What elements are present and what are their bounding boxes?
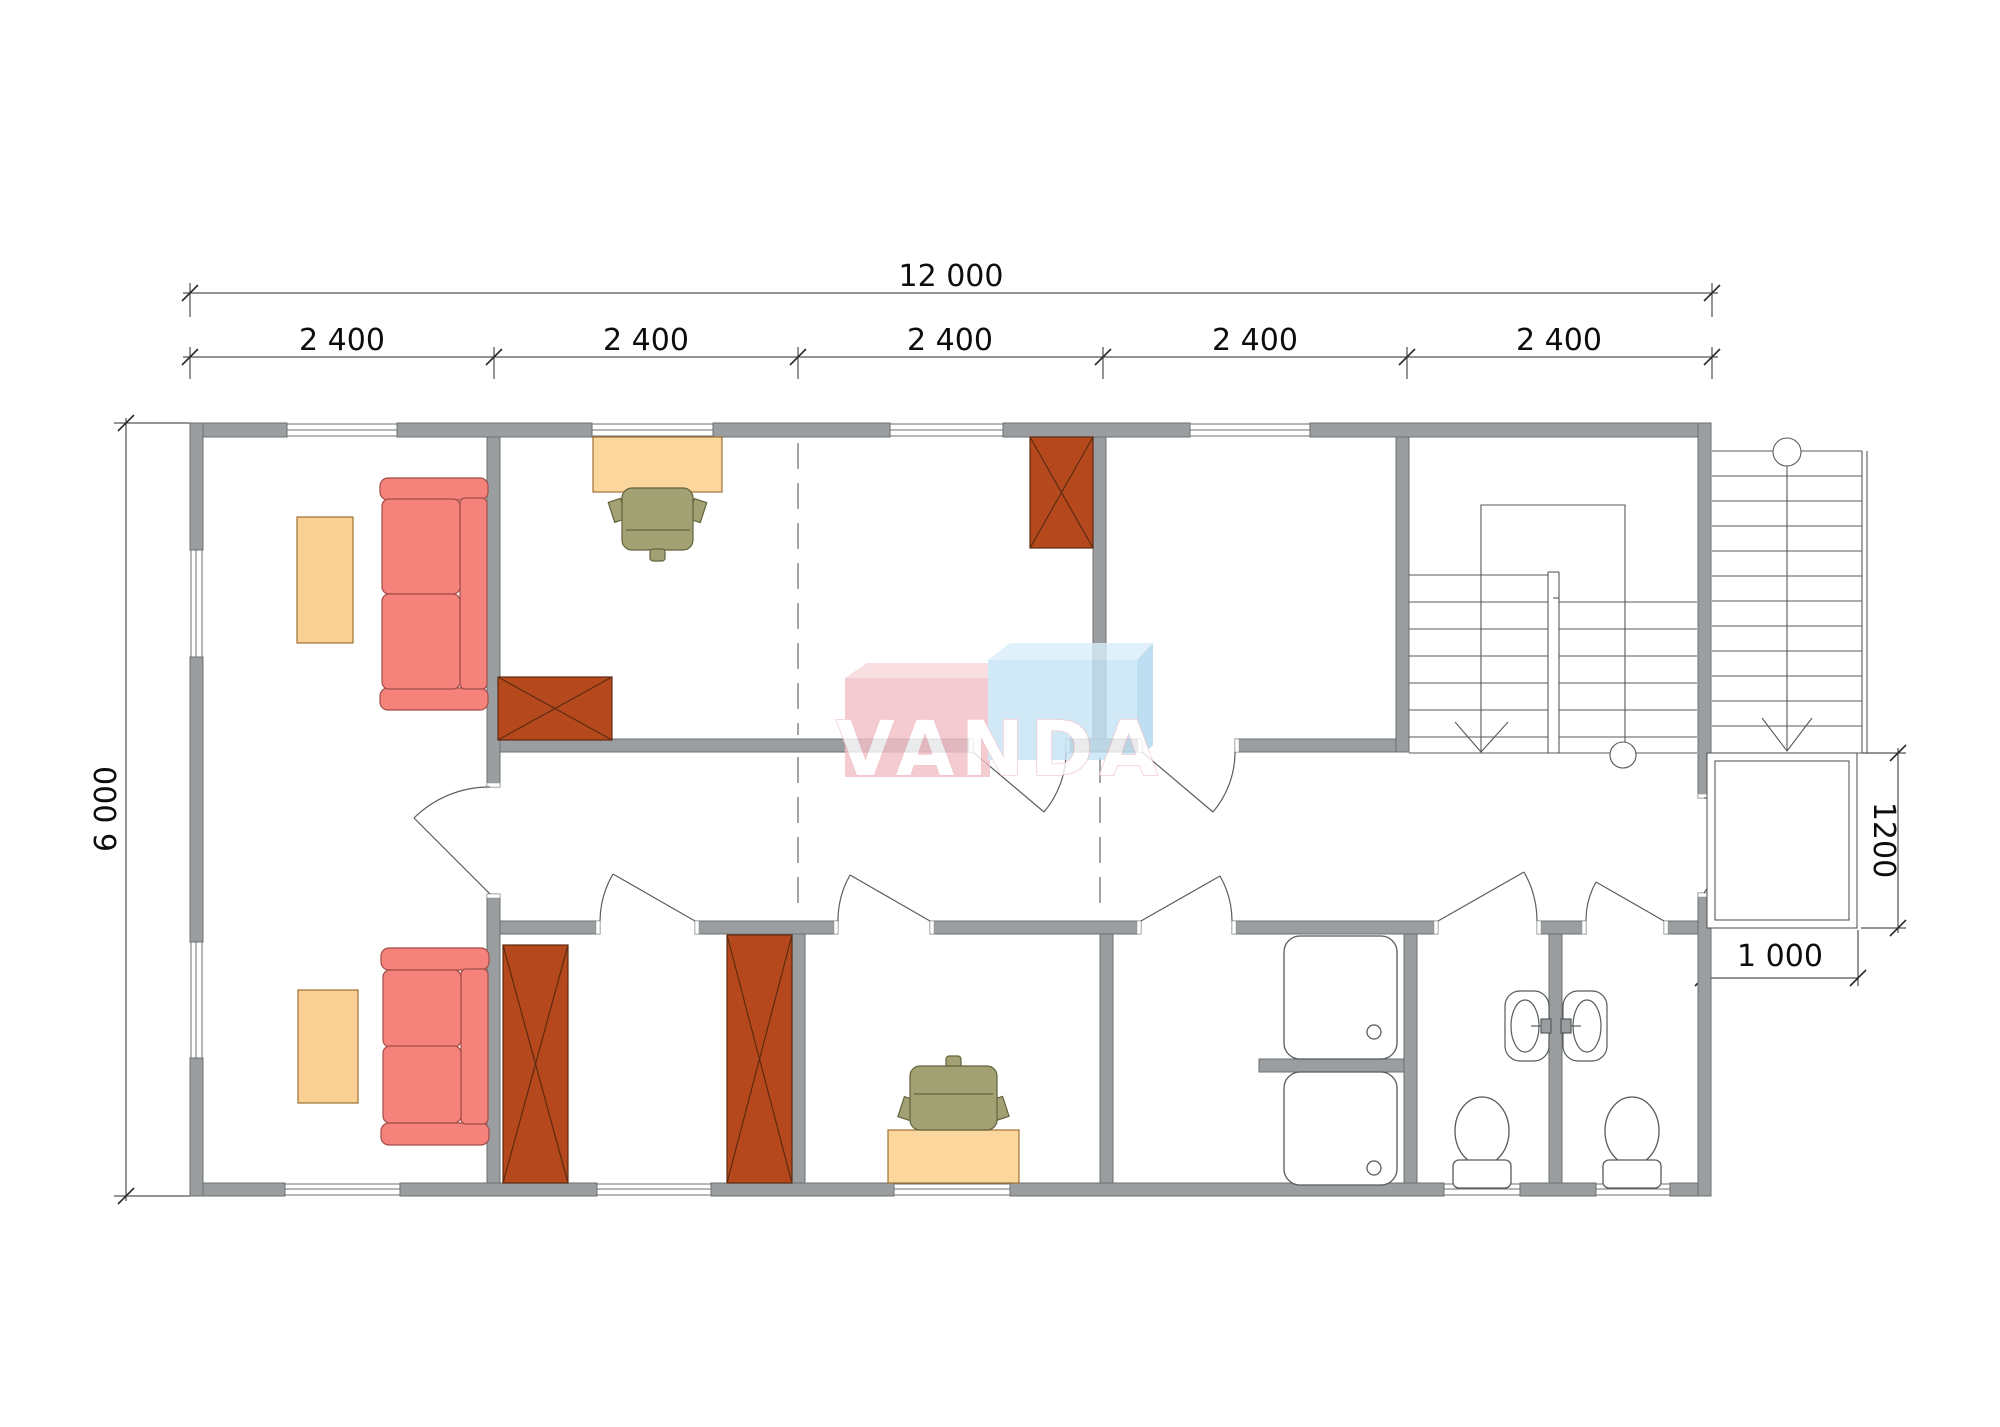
floor-plan-page: 12 000 2 400 2 400 2 400 2 400 2 400 6 0… — [0, 0, 2000, 1423]
toilet-wc2 — [1603, 1097, 1661, 1188]
stair-railing — [1548, 572, 1559, 753]
dim-module-3: 2 400 — [907, 323, 993, 358]
desk-office — [593, 437, 722, 492]
window-bottom-room2 — [894, 1184, 1010, 1195]
wardrobe-office-left — [498, 677, 612, 740]
window-top-living — [287, 424, 397, 436]
logo-pink-box-top — [845, 663, 1012, 678]
dim-module-5: 2 400 — [1516, 323, 1602, 358]
desk-bottom-room — [888, 1130, 1019, 1183]
stair-post-circle-top — [1773, 438, 1801, 466]
door-shower-room — [1141, 876, 1232, 921]
dim-porch-depth: 1200 — [1866, 802, 1901, 878]
door-wc1 — [1438, 872, 1537, 921]
coffee-table-upper — [297, 517, 353, 643]
vanda-watermark: VANDA — [836, 643, 1164, 793]
dim-porch-width: 1 000 — [1737, 939, 1823, 974]
door-living-room — [414, 787, 490, 894]
wash-basin-wc1 — [1505, 991, 1551, 1061]
floor-plan-drawing: 12 000 2 400 2 400 2 400 2 400 2 400 6 0… — [0, 0, 2000, 1423]
window-bottom-living — [285, 1184, 400, 1195]
shower-tray-upper — [1284, 936, 1397, 1059]
door-wc2 — [1586, 882, 1664, 921]
internal-u-stair — [1409, 505, 1697, 768]
dimension-labels: 12 000 2 400 2 400 2 400 2 400 2 400 6 0… — [89, 259, 1901, 974]
window-top-office — [592, 424, 713, 436]
toilet-wc1 — [1453, 1097, 1511, 1188]
door-bottom-room2 — [838, 875, 930, 921]
sofa-lower — [381, 948, 489, 1145]
coffee-table-lower — [298, 990, 358, 1103]
wash-basin-wc2 — [1561, 991, 1607, 1061]
wardrobe-room1-right — [727, 935, 792, 1183]
porch — [1707, 753, 1857, 928]
sofa-upper — [380, 478, 488, 710]
window-bottom-room1 — [597, 1184, 711, 1195]
external-stair — [1712, 438, 1867, 753]
shower-tray-lower — [1284, 1072, 1397, 1185]
stair-post-circle — [1610, 742, 1636, 768]
window-left-upper — [191, 550, 202, 657]
dim-total-width: 12 000 — [899, 259, 1004, 294]
logo-text: VANDA — [836, 704, 1164, 793]
dim-module-2: 2 400 — [603, 323, 689, 358]
window-top-office-2 — [890, 424, 1003, 436]
wardrobe-office-right — [1030, 437, 1093, 548]
logo-blue-box-top — [988, 643, 1153, 660]
dim-module-1: 2 400 — [299, 323, 385, 358]
window-left-lower — [191, 942, 202, 1058]
door-bottom-room1 — [600, 874, 695, 921]
dim-total-height: 6 000 — [89, 766, 124, 852]
office-chair-top — [608, 488, 707, 561]
window-top-room3 — [1190, 424, 1310, 436]
wardrobe-room1-left — [503, 945, 568, 1183]
office-chair-bottom — [898, 1056, 1009, 1130]
dim-module-4: 2 400 — [1212, 323, 1298, 358]
